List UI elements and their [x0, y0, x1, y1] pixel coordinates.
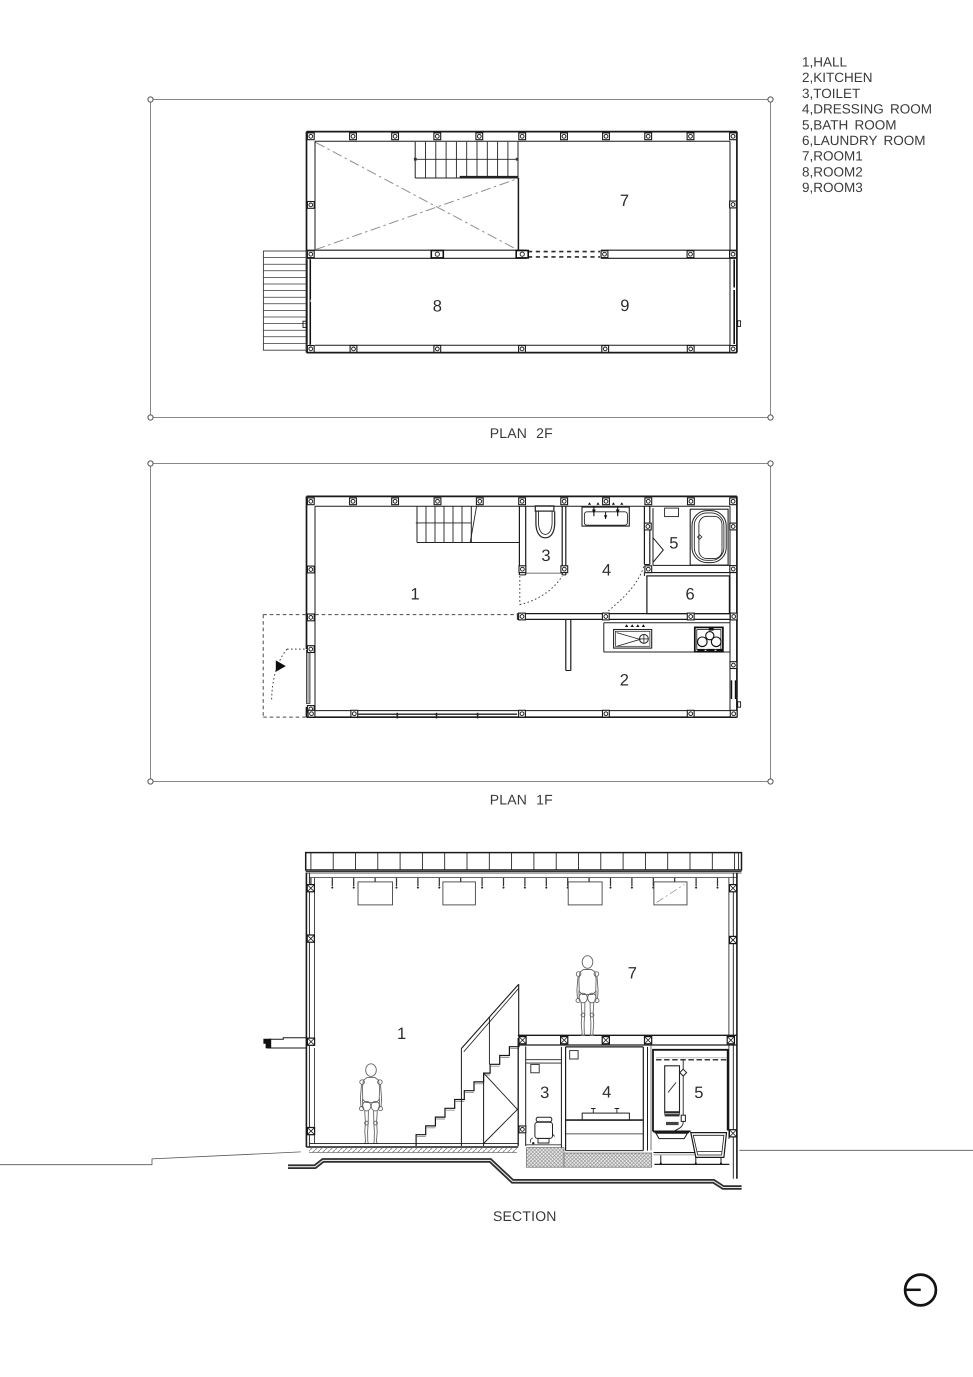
svg-text:SECTION: SECTION	[493, 1208, 557, 1224]
svg-text:4,DRESSING ROOM: 4,DRESSING ROOM	[802, 102, 932, 117]
svg-text:7: 7	[628, 965, 637, 983]
svg-text:3: 3	[540, 1084, 549, 1102]
svg-text:2,KITCHEN: 2,KITCHEN	[802, 70, 873, 85]
svg-text:PLAN 2F: PLAN 2F	[490, 425, 553, 441]
svg-text:7: 7	[620, 192, 629, 210]
svg-text:9,ROOM3: 9,ROOM3	[802, 180, 863, 195]
svg-text:1: 1	[411, 586, 420, 604]
svg-text:8,ROOM2: 8,ROOM2	[802, 164, 863, 179]
svg-text:5: 5	[669, 535, 678, 553]
svg-text:6: 6	[686, 586, 695, 604]
svg-text:5,BATH ROOM: 5,BATH ROOM	[802, 117, 897, 132]
svg-text:PLAN 1F: PLAN 1F	[490, 791, 553, 807]
svg-text:1: 1	[397, 1025, 406, 1043]
svg-text:6,LAUNDRY ROOM: 6,LAUNDRY ROOM	[802, 133, 926, 148]
svg-text:7,ROOM1: 7,ROOM1	[802, 149, 863, 164]
svg-text:4: 4	[602, 562, 611, 580]
svg-text:8: 8	[433, 297, 442, 315]
svg-text:1,HALL: 1,HALL	[802, 55, 848, 70]
svg-text:3,TOILET: 3,TOILET	[802, 86, 860, 101]
svg-text:9: 9	[620, 297, 629, 315]
svg-text:3: 3	[541, 547, 550, 565]
svg-text:4: 4	[602, 1084, 611, 1102]
svg-text:2: 2	[620, 671, 629, 689]
svg-text:5: 5	[694, 1084, 703, 1102]
